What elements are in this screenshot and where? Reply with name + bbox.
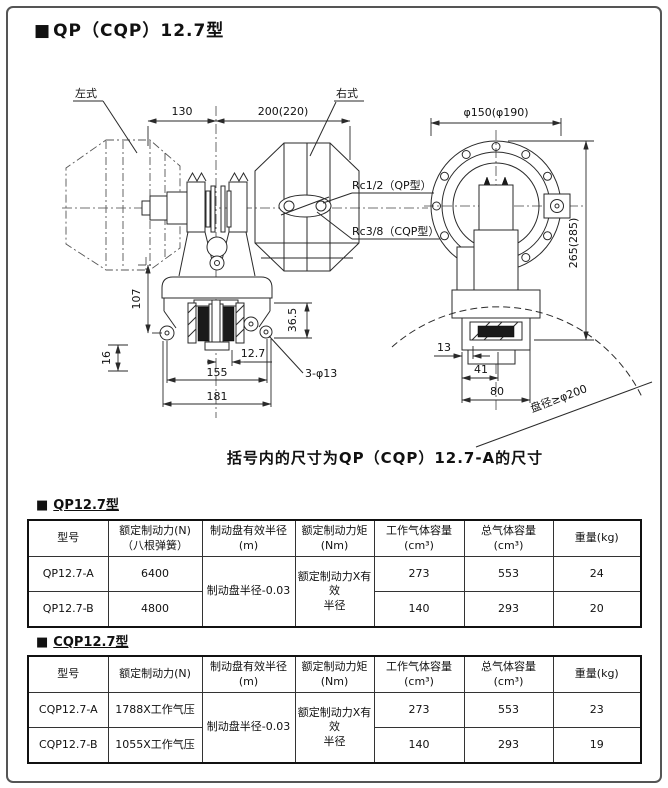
svg-text:左式: 左式 [75,87,97,100]
header-model: 型号 [28,520,108,557]
cell-work-volume: 140 [374,592,464,628]
dim-36-5: 36.5 [274,303,312,338]
section-square-marker: ■ [36,498,48,513]
left-type-label: 左式 [73,87,137,153]
cqp-header-row: 型号 额定制动力(N) 制动盘有效半径 (m) 额定制动力矩 (Nm) 工作气体… [28,656,641,693]
svg-text:右式: 右式 [336,86,358,100]
cell-total-volume: 553 [464,693,553,728]
table-row: CQP12.7-A 1788X工作气压 制动盘半径-0.03 额定制动力X有效 … [28,693,641,728]
drawing-caption: 括号内的尺寸为QP（CQP）12.7-A的尺寸 [105,447,665,468]
header-disc-radius: 制动盘有效半径 (m) [202,656,295,693]
svg-text:155: 155 [207,366,228,379]
header-working-volume: 工作气体容量 (cm³) [374,656,464,693]
disc-diameter-note: 盘径≥φ200 [528,381,589,415]
dim-130: 130 200(220) [148,105,350,160]
side-view: φ150(φ190) 265(285) 13 41 8 [392,106,652,447]
svg-text:107: 107 [130,289,143,310]
header-braking-torque: 额定制动力矩 (Nm) [295,656,374,693]
qp-spec-table: 型号 额定制动力(N) （八根弹簧） 制动盘有效半径 (m) 额定制动力矩 (N… [27,519,642,628]
cell-torque-note: 额定制动力X有效 半径 [295,557,374,628]
svg-text:16: 16 [100,351,113,365]
rc-cqp-label: Rc3/8（CQP型） [352,224,439,238]
header-total-volume: 总气体容量 (cm³) [464,656,553,693]
header-total-volume: 总气体容量 (cm³) [464,520,553,557]
dim-16: 16 [100,345,128,371]
cell-model: QP12.7-B [28,592,108,628]
cell-work-volume: 273 [374,693,464,728]
cell-radius-note: 制动盘半径-0.03 [202,693,295,764]
svg-text:12.7: 12.7 [241,347,266,360]
dim-200-220: 200(220) [258,105,309,118]
qp-header-row: 型号 额定制动力(N) （八根弹簧） 制动盘有效半径 (m) 额定制动力矩 (N… [28,520,641,557]
cell-model: QP12.7-A [28,557,108,592]
dim-13: 13 [437,341,451,354]
section-heading-cqp: ■CQP12.7型 [36,631,129,650]
cell-weight: 24 [553,557,641,592]
shaft [142,192,187,224]
header-braking-force: 额定制动力(N) （八根弹簧） [108,520,202,557]
cell-work-volume: 140 [374,728,464,764]
cell-radius-note: 制动盘半径-0.03 [202,557,295,628]
svg-text:130: 130 [172,105,193,118]
cell-weight: 20 [553,592,641,628]
right-type-cylinder [255,143,359,271]
cell-force: 1055X工作气压 [108,728,202,764]
cell-model: CQP12.7-B [28,728,108,764]
front-view: 左式 右式 130 200(220) Rc1/2（QP型） [62,86,440,418]
section-heading-qp: ■QP12.7型 [36,494,119,513]
section-square-marker: ■ [36,635,48,650]
header-braking-torque: 额定制动力矩 (Nm) [295,520,374,557]
cell-torque-note: 额定制动力X有效 半径 [295,693,374,764]
header-model: 型号 [28,656,108,693]
brake-pads [188,300,244,350]
header-weight: 重量(kg) [553,656,641,693]
svg-text:3-φ13: 3-φ13 [305,367,337,380]
table-row: QP12.7-A 6400 制动盘半径-0.03 额定制动力X有效 半径 273… [28,557,641,592]
cell-weight: 23 [553,693,641,728]
section-title-cqp: CQP12.7型 [53,635,128,650]
technical-drawing: 左式 右式 130 200(220) Rc1/2（QP型） [0,0,668,452]
svg-text:181: 181 [207,390,228,403]
cell-total-volume: 293 [464,592,553,628]
cell-force: 1788X工作气压 [108,693,202,728]
header-weight: 重量(kg) [553,520,641,557]
section-title-qp: QP12.7型 [53,498,119,513]
rc-port-labels: Rc1/2（QP型） Rc3/8（CQP型） [317,178,440,239]
datasheet-page: ■QP（CQP）12.7型 [0,0,668,788]
cqp-spec-table: 型号 额定制动力(N) 制动盘有效半径 (m) 额定制动力矩 (Nm) 工作气体… [27,655,642,764]
cell-total-volume: 293 [464,728,553,764]
header-braking-force: 额定制动力(N) [108,656,202,693]
side-body [452,177,540,364]
cell-model: CQP12.7-A [28,693,108,728]
svg-text:265(285): 265(285) [567,218,580,269]
cell-force: 4800 [108,592,202,628]
cylinder-posts [187,173,248,232]
cell-work-volume: 273 [374,557,464,592]
cell-weight: 19 [553,728,641,764]
svg-text:φ150(φ190): φ150(φ190) [463,106,528,119]
rc-qp-label: Rc1/2（QP型） [352,178,432,192]
bracket-arms [179,232,255,276]
header-disc-radius: 制动盘有效半径 (m) [202,520,295,557]
dim-3-phi13: 3-φ13 [269,336,337,380]
dim-41: 41 [474,363,488,376]
dim-80: 80 [490,385,504,398]
cell-force: 6400 [108,557,202,592]
svg-text:36.5: 36.5 [286,308,299,333]
dim-107: 107 [130,257,162,333]
header-working-volume: 工作气体容量 (cm³) [374,520,464,557]
cell-total-volume: 553 [464,557,553,592]
